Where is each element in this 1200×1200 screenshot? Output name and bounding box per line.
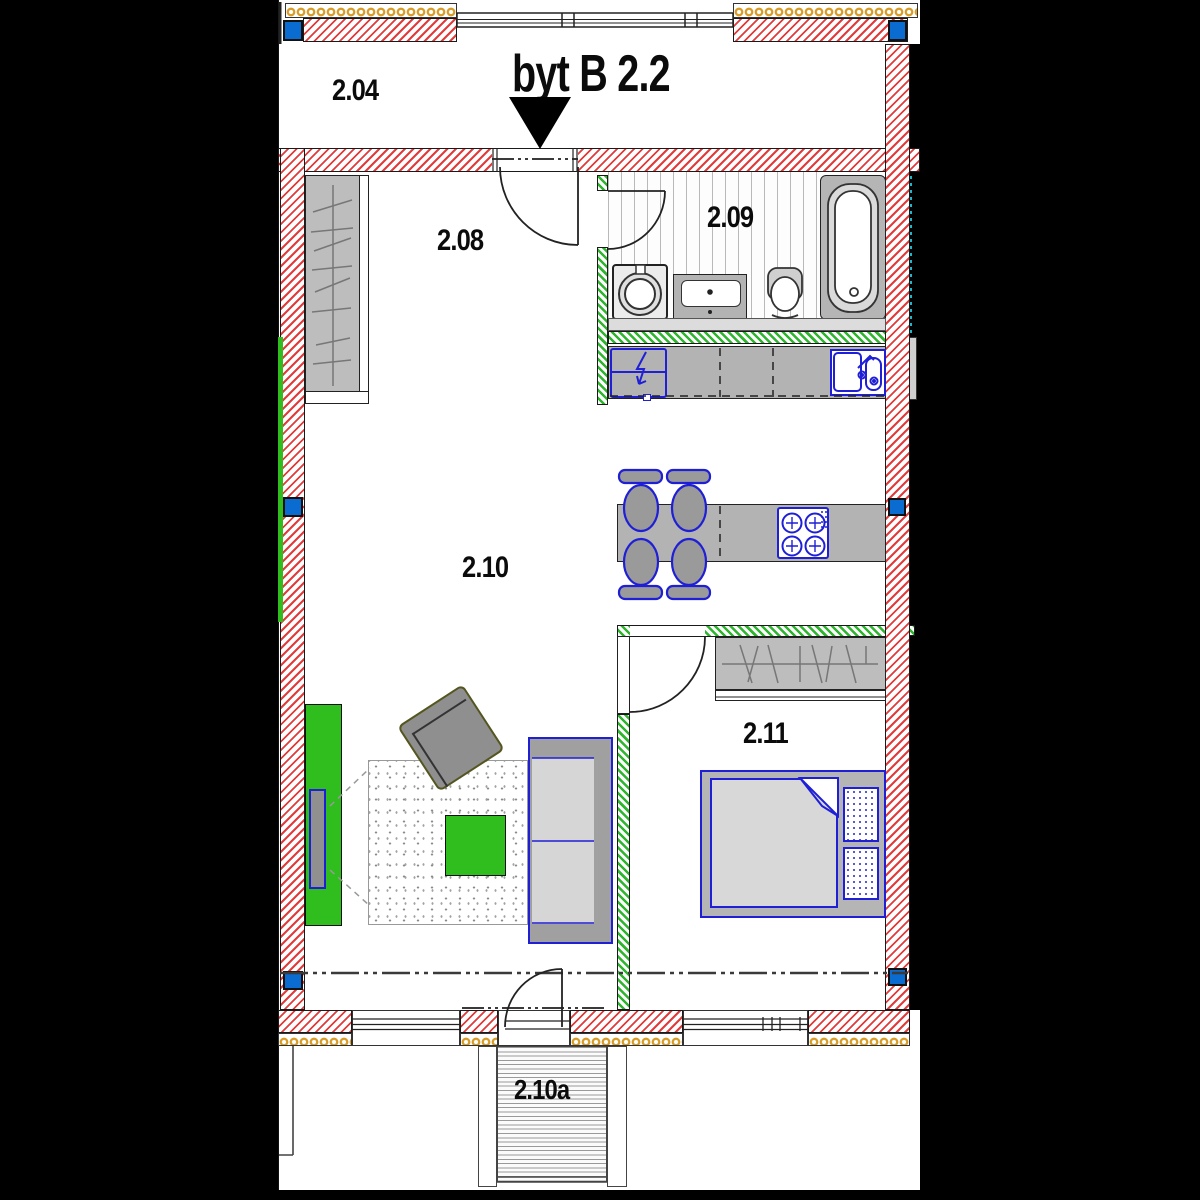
bottom-wall-seg2 (460, 1010, 498, 1033)
column-bottom-right (888, 968, 907, 986)
bottom-window-2 (683, 1010, 808, 1046)
fridge-divider (612, 371, 665, 373)
hall-wardrobe-door-panel (359, 175, 369, 392)
hall-wardrobe-base (305, 391, 369, 404)
pillow-top (843, 787, 879, 842)
floor-plan: byt B 2.2 2.04 2.08 2.09 2.10 2.11 2.10a (0, 0, 1200, 1200)
fridge-hinge (643, 394, 651, 401)
column-top-left (283, 20, 303, 41)
bottom-insulation-4 (808, 1033, 910, 1046)
coffee-table (445, 815, 506, 876)
top-wall-left (303, 18, 457, 42)
bath-bottom-wall (608, 331, 886, 344)
column-bottom-left (283, 971, 303, 990)
vanity-sink (681, 280, 741, 307)
top-insulation-left (285, 3, 457, 18)
cooktop (777, 507, 829, 559)
bottom-window-1 (352, 1010, 460, 1046)
stair-rail-left (478, 1046, 497, 1187)
room-label-bathroom: 2.09 (707, 201, 753, 235)
room-label-living: 2.10 (462, 551, 508, 585)
room-label-bedroom: 2.11 (743, 717, 788, 751)
stair-rail-right (607, 1046, 627, 1187)
pillow-bottom (843, 847, 879, 900)
bottom-wall-seg4 (808, 1010, 910, 1033)
top-insulation-right (733, 3, 918, 18)
column-top-right (888, 20, 907, 41)
bottom-insulation-1 (278, 1033, 352, 1046)
bedroom-door-opening (630, 626, 705, 636)
hall-wardrobe (305, 175, 360, 392)
bathtub (820, 175, 886, 320)
bedroom-wardrobe (715, 637, 886, 690)
mattress (710, 778, 838, 908)
left-wall (280, 148, 305, 1010)
room-label-balcony: 2.10a (514, 1074, 569, 1106)
right-wall (885, 44, 910, 1010)
balcony-door-opening (498, 1010, 570, 1046)
bath-partition-lower (597, 247, 608, 405)
tv (309, 789, 326, 889)
bottom-wall-seg1 (278, 1010, 352, 1033)
room-label-hall: 2.08 (437, 224, 483, 258)
entrance-arrow-icon (509, 97, 571, 149)
bottom-insulation-3 (570, 1033, 683, 1046)
sofa-cushion-top (532, 758, 594, 841)
entrance-door-opening (492, 149, 578, 171)
dining-table-island (617, 504, 886, 562)
room-label-corridor: 2.04 (332, 74, 378, 108)
sofa-cushion-bottom (532, 841, 594, 924)
column-mid-left (283, 497, 303, 517)
bedroom-left-wall (617, 714, 630, 1010)
apartment-top-wall (278, 148, 920, 172)
bottom-insulation-2 (460, 1033, 498, 1046)
bedroom-wardrobe-shelf (715, 690, 886, 701)
bottom-wall-seg3 (570, 1010, 683, 1033)
top-wall-right (733, 18, 908, 42)
apartment-title: byt B 2.2 (512, 44, 670, 104)
fridge (610, 348, 667, 398)
kitchen-sink (830, 349, 886, 396)
bath-partition-stub-top (597, 175, 608, 191)
bedroom-door-leaf (617, 636, 630, 714)
neighbor-green-strip (278, 337, 283, 622)
column-mid-right (888, 498, 906, 516)
washing-machine (612, 264, 668, 320)
bathroom-ledge (608, 318, 886, 331)
staircase (497, 1046, 607, 1182)
